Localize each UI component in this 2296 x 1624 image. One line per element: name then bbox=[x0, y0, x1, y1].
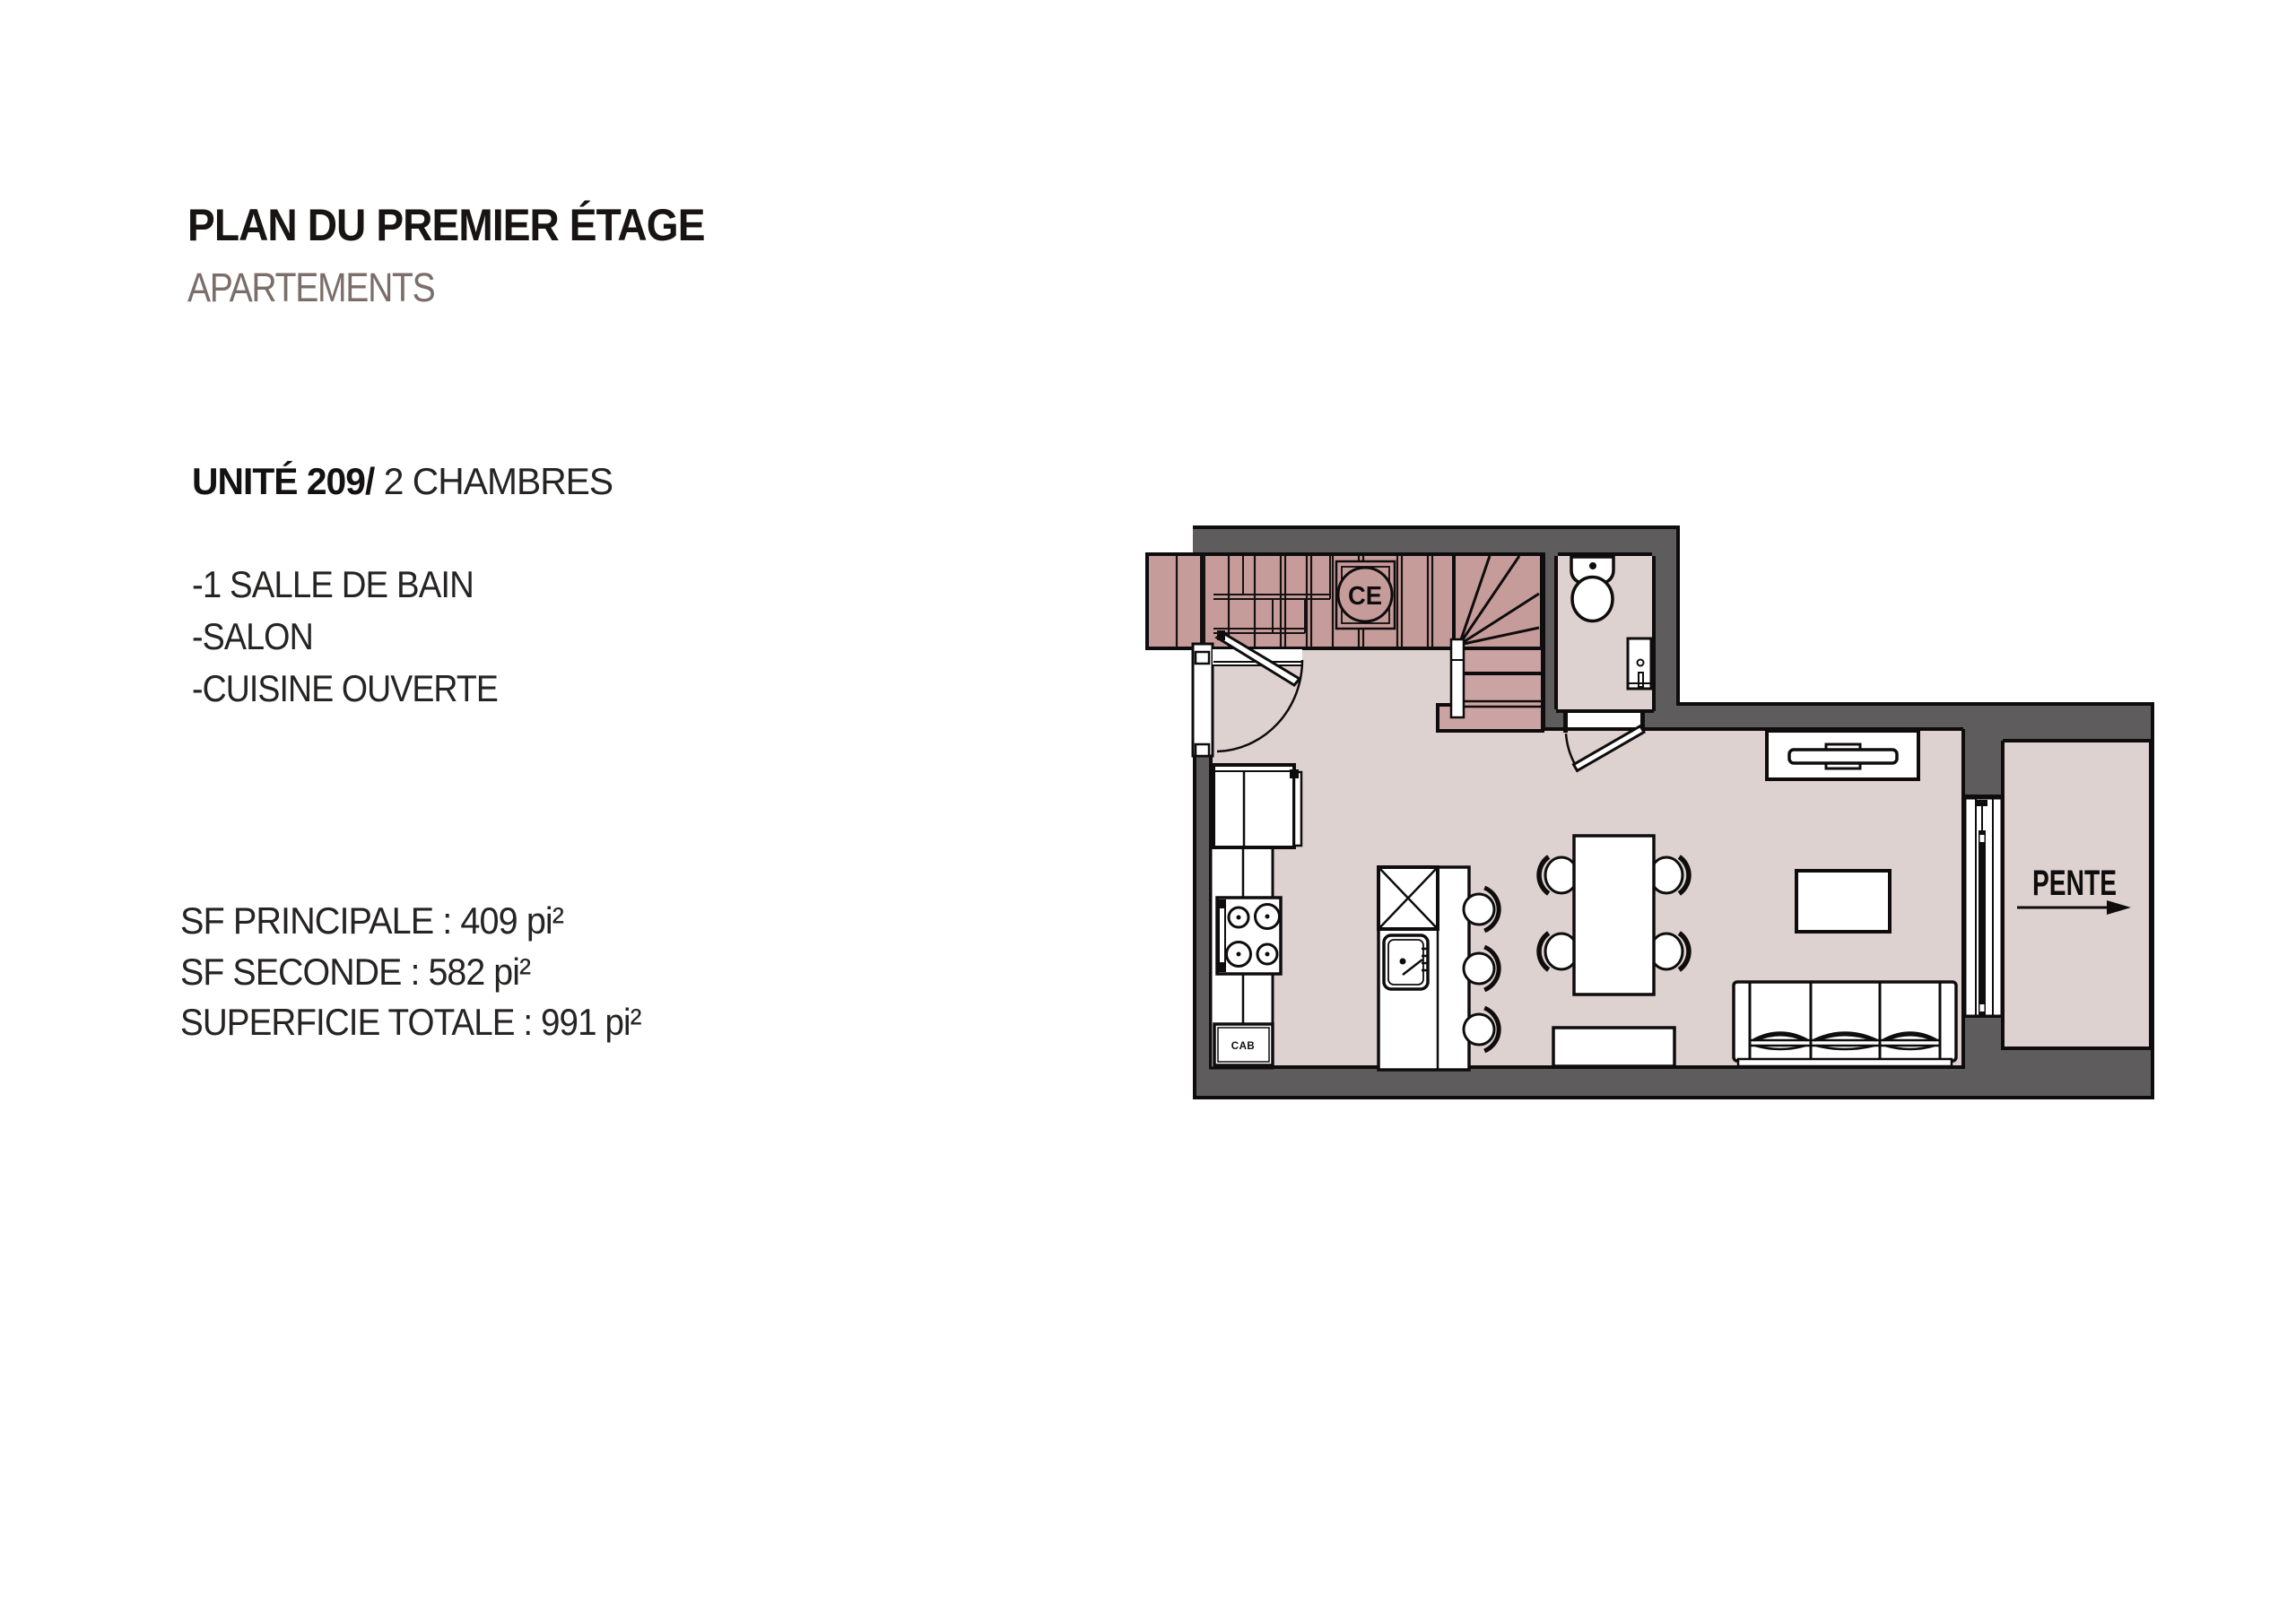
svg-text:PENTE: PENTE bbox=[2032, 864, 2117, 903]
svg-text:CE: CE bbox=[1348, 582, 1382, 611]
svg-text:CAB: CAB bbox=[1231, 1041, 1255, 1052]
